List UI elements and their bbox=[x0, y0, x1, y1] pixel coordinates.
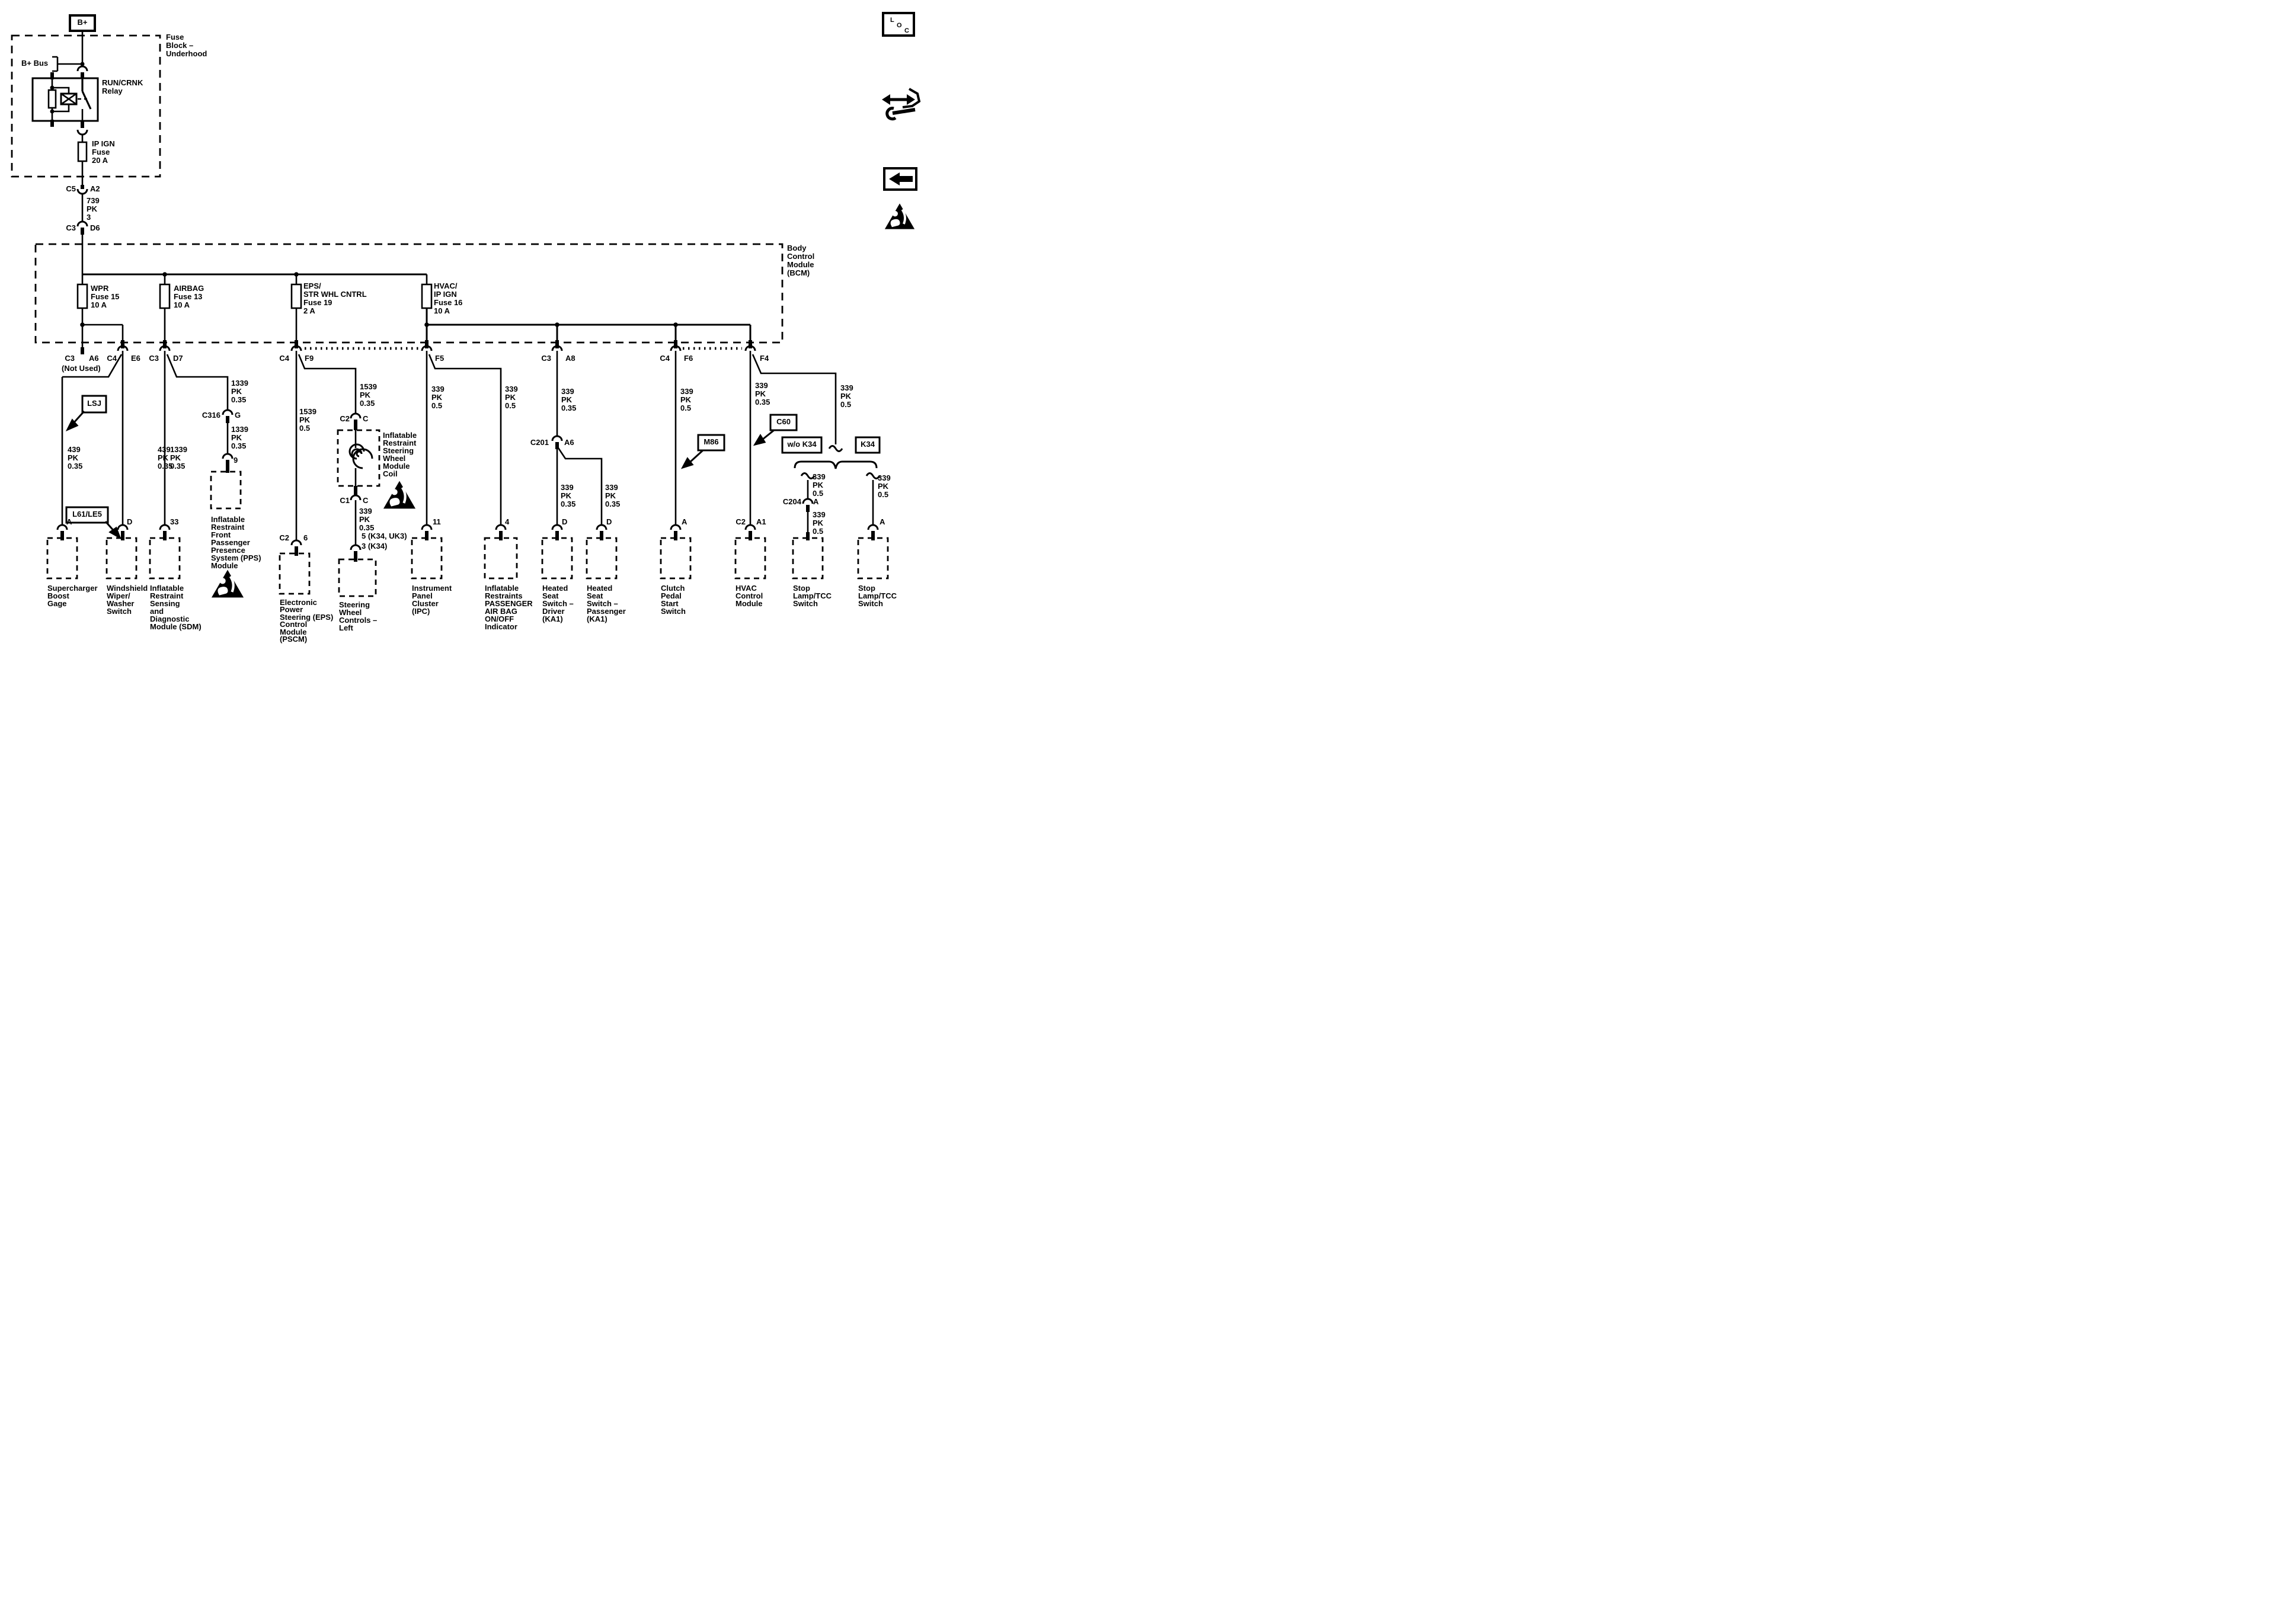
label-ip-ign-fuse-2: Fuse bbox=[92, 148, 110, 156]
label-ipc-name-4: (IPC) bbox=[412, 607, 430, 615]
label-wire-1339a-2: PK bbox=[170, 454, 181, 462]
label-b-plus-bus: B+ Bus bbox=[21, 59, 48, 67]
label-wire-1539b-3: 0.35 bbox=[360, 399, 375, 407]
label-conn-c3-d7: C3 bbox=[149, 354, 159, 362]
c60-arrow bbox=[755, 430, 774, 444]
label-slr-name-3: Switch bbox=[858, 600, 883, 607]
heated-seat-passenger-box bbox=[587, 538, 616, 578]
label-wire-339hs-1: 339 bbox=[561, 388, 574, 395]
label-wire-339sll-a3: 0.5 bbox=[813, 489, 823, 497]
label-bcm-name-1: Body bbox=[787, 244, 807, 252]
label-wire-339sll-a1: 339 bbox=[813, 473, 826, 481]
label-wire-439a-3: 0.35 bbox=[68, 462, 82, 470]
steering-wheel-controls-box bbox=[339, 559, 376, 596]
bcm-box bbox=[36, 244, 782, 343]
label-wire-1339c-1: 1339 bbox=[231, 425, 248, 433]
label-wire-339hsp-3: 0.35 bbox=[605, 500, 620, 508]
label-wire-1539a-3: 0.5 bbox=[299, 424, 310, 432]
label-wire-439a-1: 439 bbox=[68, 446, 81, 453]
airbag-warning-icon-coil bbox=[383, 481, 415, 509]
label-wire-339sll-a2: PK bbox=[813, 481, 823, 489]
label-ip-ign-fuse-3: 20 A bbox=[92, 156, 108, 164]
label-wire-1339b-2: PK bbox=[231, 388, 242, 395]
label-airbag-fuse-1: AIRBAG bbox=[174, 284, 204, 292]
label-eps-fuse-2: STR WHL CNTRL bbox=[303, 290, 367, 298]
label-wire-339hsd-3: 0.35 bbox=[561, 500, 575, 508]
label-wire-739-gauge: 3 bbox=[87, 213, 91, 221]
pps-module-box bbox=[211, 472, 241, 508]
label-wire-739-color: PK bbox=[87, 205, 97, 213]
label-wpr-fuse-1: WPR bbox=[91, 284, 108, 292]
label-conn-c201: C201 bbox=[530, 438, 549, 446]
label-conn-c3-a6: C3 bbox=[65, 354, 75, 362]
label-relay-name-1: RUN/CRNK bbox=[102, 79, 143, 87]
label-wire-339hv-2: PK bbox=[755, 390, 766, 398]
supercharger-boost-gage-box bbox=[47, 538, 77, 578]
label-conn-c3-top: C3 bbox=[66, 224, 76, 232]
sdm-box bbox=[150, 538, 180, 578]
label-wire-1339b-3: 0.35 bbox=[231, 396, 246, 404]
label-pin-d-hsd: D bbox=[562, 518, 567, 526]
label-wire-1339a-3: 0.35 bbox=[170, 462, 185, 470]
label-fuse-block-name-3: Underhood bbox=[166, 50, 207, 57]
label-wire-339ipc-1: 339 bbox=[431, 385, 445, 393]
label-wire-1339a-1: 1339 bbox=[170, 446, 187, 453]
label-conn-c1-coil: C1 bbox=[340, 497, 350, 504]
label-pin-f9: F9 bbox=[305, 354, 314, 362]
label-wire-339hsd-1: 339 bbox=[561, 484, 574, 491]
stop-lamp-tcc-switch-left-box bbox=[793, 538, 823, 578]
label-wire-339cl-2: PK bbox=[680, 396, 691, 404]
airbag-warning-icon-pps bbox=[212, 570, 244, 598]
label-wpr-fuse-2: Fuse 15 bbox=[91, 293, 119, 300]
label-wire-339cl-1: 339 bbox=[680, 388, 693, 395]
label-conn-c4-f6: C4 bbox=[660, 354, 670, 362]
label-pin-f5: F5 bbox=[435, 354, 444, 362]
label-wire-339hsp-1: 339 bbox=[605, 484, 618, 491]
label-loc-letter-o: O bbox=[897, 22, 902, 29]
label-pin-d-hsp: D bbox=[606, 518, 612, 526]
label-wire-339hv-1: 339 bbox=[755, 382, 768, 389]
label-wire-439a-2: PK bbox=[68, 454, 78, 462]
label-wire-339pai-1: 339 bbox=[505, 385, 518, 393]
label-loc-letter-l: L bbox=[890, 17, 894, 24]
label-wire-339swc-2: PK bbox=[359, 516, 370, 523]
label-hvac-fuse-3: Fuse 16 bbox=[434, 299, 462, 306]
label-wire-339slr-1: 339 bbox=[878, 474, 891, 482]
label-hvac-fuse-1: HVAC/ bbox=[434, 282, 457, 290]
label-wire-339swc-1: 339 bbox=[359, 507, 372, 515]
label-pin-d-wws: D bbox=[127, 518, 132, 526]
ip-ign-fuse-symbol bbox=[78, 142, 87, 161]
label-wire-339ipc-3: 0.5 bbox=[431, 402, 442, 409]
m86-arrow bbox=[683, 450, 703, 468]
label-conn-c60: C60 bbox=[776, 418, 791, 425]
label-conn-c316: C316 bbox=[202, 411, 220, 419]
label-wire-339sll-b1: 339 bbox=[813, 511, 826, 518]
label-hvacm-name-3: Module bbox=[736, 600, 763, 607]
label-swc-name-4: Left bbox=[339, 624, 353, 632]
label-airbag-fuse-2: Fuse 13 bbox=[174, 293, 202, 300]
label-sdm-name-6: Module (SDM) bbox=[150, 623, 202, 630]
label-relay-name-2: Relay bbox=[102, 87, 123, 95]
steering-wheel-coil-box bbox=[338, 430, 379, 486]
label-pin-a-slr: A bbox=[880, 518, 885, 526]
label-option-l61-le5: L61/LE5 bbox=[72, 510, 102, 518]
label-pin-f6: F6 bbox=[684, 354, 693, 362]
label-pai-name-6: Indicator bbox=[485, 623, 517, 630]
option-brace bbox=[795, 462, 877, 469]
label-pin-4: 4 bbox=[505, 518, 509, 526]
label-pin-11: 11 bbox=[433, 518, 441, 526]
label-wws-name-4: Switch bbox=[107, 607, 132, 615]
component-boxes bbox=[12, 36, 888, 596]
label-pin-e6: E6 bbox=[131, 354, 140, 362]
label-wire-339hsd-2: PK bbox=[561, 492, 571, 500]
label-eps-fuse-4: 2 A bbox=[303, 307, 315, 315]
label-wire-339pai-2: PK bbox=[505, 393, 516, 401]
label-pin-5-k34-uk3: 5 (K34, UK3) bbox=[362, 532, 407, 540]
relay-resistor bbox=[49, 90, 56, 108]
label-eps-fuse-3: Fuse 19 bbox=[303, 299, 332, 306]
airbag-warning-icon bbox=[885, 203, 914, 229]
label-sll-name-3: Switch bbox=[793, 600, 818, 607]
label-pin-a-c204: A bbox=[813, 498, 818, 505]
label-hvac-fuse-4: 10 A bbox=[434, 307, 450, 315]
label-wire-339sll-b3: 0.5 bbox=[813, 527, 823, 535]
label-pin-3-k34: 3 (K34) bbox=[362, 542, 387, 550]
label-scbg-name-3: Gage bbox=[47, 600, 67, 607]
label-conn-c2-coil: C2 bbox=[340, 415, 350, 422]
label-conn-c204: C204 bbox=[783, 498, 801, 505]
label-pin-a6: A6 bbox=[89, 354, 99, 362]
clockspring-spiral bbox=[350, 444, 372, 468]
label-pin-d6: D6 bbox=[90, 224, 100, 232]
label-conn-c4-f9: C4 bbox=[279, 354, 289, 362]
hvac-fuse-symbol bbox=[422, 284, 431, 308]
label-wire-439b-1: 439 bbox=[158, 446, 171, 453]
label-wire-339hs-3: 0.35 bbox=[561, 404, 576, 412]
label-pin-d7: D7 bbox=[173, 354, 183, 362]
service-info-icon bbox=[882, 89, 919, 119]
junction-dots bbox=[50, 62, 678, 327]
label-pin-6: 6 bbox=[303, 534, 308, 542]
ipc-box bbox=[412, 538, 442, 578]
label-pin-a6-c201: A6 bbox=[564, 438, 574, 446]
label-loc-letter-c: C bbox=[904, 27, 909, 34]
label-pin-a8: A8 bbox=[565, 354, 575, 362]
wpr-fuse-symbol bbox=[78, 284, 87, 308]
label-wire-1339b-1: 1339 bbox=[231, 379, 248, 387]
label-pin-a2: A2 bbox=[90, 185, 100, 193]
label-wire-339hsp-2: PK bbox=[605, 492, 616, 500]
label-eps-fuse-1: EPS/ bbox=[303, 282, 321, 290]
label-wire-339sl-1: 339 bbox=[840, 384, 853, 392]
label-bcm-name-3: Module bbox=[787, 261, 814, 268]
label-wire-339slr-2: PK bbox=[878, 482, 888, 490]
label-conn-m86: M86 bbox=[703, 438, 718, 446]
stop-lamp-tcc-switch-right-box bbox=[858, 538, 888, 578]
label-wire-339sl-3: 0.5 bbox=[840, 401, 851, 408]
label-pin-9: 9 bbox=[234, 456, 238, 464]
label-airbag-fuse-3: 10 A bbox=[174, 301, 190, 309]
relay-coil bbox=[61, 94, 76, 104]
back-arrow-icon bbox=[884, 168, 916, 190]
label-pin-a1: A1 bbox=[756, 518, 766, 526]
l61-le5-arrow bbox=[105, 521, 120, 537]
label-pps-name-7: Module bbox=[211, 562, 238, 569]
clutch-pedal-start-switch-box bbox=[661, 538, 690, 578]
label-option-k34: K34 bbox=[861, 440, 875, 448]
label-fuse-block-name-1: Fuse bbox=[166, 33, 184, 41]
label-pin-33: 33 bbox=[170, 518, 178, 526]
label-b-plus-terminal: B+ bbox=[78, 18, 88, 26]
label-wire-1539a-2: PK bbox=[299, 416, 310, 424]
label-fuse-block-name-2: Block – bbox=[166, 41, 193, 49]
label-wire-1339c-2: PK bbox=[231, 434, 242, 441]
label-conn-c5: C5 bbox=[66, 185, 76, 193]
label-conn-c2-hvac: C2 bbox=[736, 518, 746, 526]
heated-seat-driver-box bbox=[542, 538, 572, 578]
label-wire-439b-2: PK bbox=[158, 454, 168, 462]
label-hsd-name-5: (KA1) bbox=[542, 615, 563, 623]
label-wire-1339c-3: 0.35 bbox=[231, 442, 246, 450]
label-hvac-fuse-2: IP IGN bbox=[434, 290, 457, 298]
label-pin-c-top: C bbox=[363, 415, 368, 422]
label-conn-c4-e6: C4 bbox=[107, 354, 117, 362]
label-wire-339sl-2: PK bbox=[840, 392, 851, 400]
hvac-control-module-box bbox=[736, 538, 765, 578]
label-ip-ign-fuse-1: IP IGN bbox=[92, 140, 115, 148]
label-conn-c3-a8: C3 bbox=[541, 354, 551, 362]
schematic-artwork bbox=[0, 0, 922, 646]
label-wire-1539a-1: 1539 bbox=[299, 408, 316, 415]
label-not-used: (Not Used) bbox=[62, 364, 101, 372]
label-pin-a-clutch: A bbox=[682, 518, 687, 526]
label-option-lsj: LSJ bbox=[87, 399, 101, 407]
label-option-wo-k34: w/o K34 bbox=[787, 440, 816, 448]
label-clutch-name-4: Switch bbox=[661, 607, 686, 615]
label-pin-c-bottom: C bbox=[363, 497, 368, 504]
airbag-fuse-symbol bbox=[160, 284, 170, 308]
label-pin-a-scbg: A bbox=[66, 518, 72, 526]
label-wire-1539b-2: PK bbox=[360, 391, 370, 399]
label-wire-339slr-3: 0.5 bbox=[878, 491, 888, 498]
label-hsp-name-5: (KA1) bbox=[587, 615, 607, 623]
pscm-box bbox=[280, 553, 309, 594]
windshield-wiper-washer-switch-box bbox=[107, 538, 136, 578]
label-pin-g: G bbox=[235, 411, 241, 419]
label-wpr-fuse-3: 10 A bbox=[91, 301, 107, 309]
label-pin-f4: F4 bbox=[760, 354, 769, 362]
label-wire-339swc-3: 0.35 bbox=[359, 524, 374, 532]
label-wire-1539b-1: 1539 bbox=[360, 383, 377, 391]
label-wire-339sll-b2: PK bbox=[813, 519, 823, 527]
label-pscm-name-6: (PSCM) bbox=[280, 635, 307, 643]
passenger-airbag-indicator-box bbox=[485, 538, 517, 578]
label-wire-339hv-3: 0.35 bbox=[755, 398, 770, 406]
label-conn-c2-pscm: C2 bbox=[279, 534, 289, 542]
lsj-arrow bbox=[68, 411, 84, 430]
label-wire-339hs-2: PK bbox=[561, 396, 572, 404]
label-bcm-name-2: Control bbox=[787, 252, 814, 260]
label-wire-339pai-3: 0.5 bbox=[505, 402, 516, 409]
label-wire-339cl-3: 0.5 bbox=[680, 404, 691, 412]
label-wire-739-num: 739 bbox=[87, 197, 100, 204]
label-bcm-name-4: (BCM) bbox=[787, 269, 810, 277]
label-wire-339ipc-2: PK bbox=[431, 393, 442, 401]
wiring-diagram: B+FuseBlock –UnderhoodB+ BusRUN/CRNKRela… bbox=[0, 0, 922, 646]
eps-fuse-symbol bbox=[292, 284, 301, 308]
label-coil-name-6: Coil bbox=[383, 470, 398, 478]
